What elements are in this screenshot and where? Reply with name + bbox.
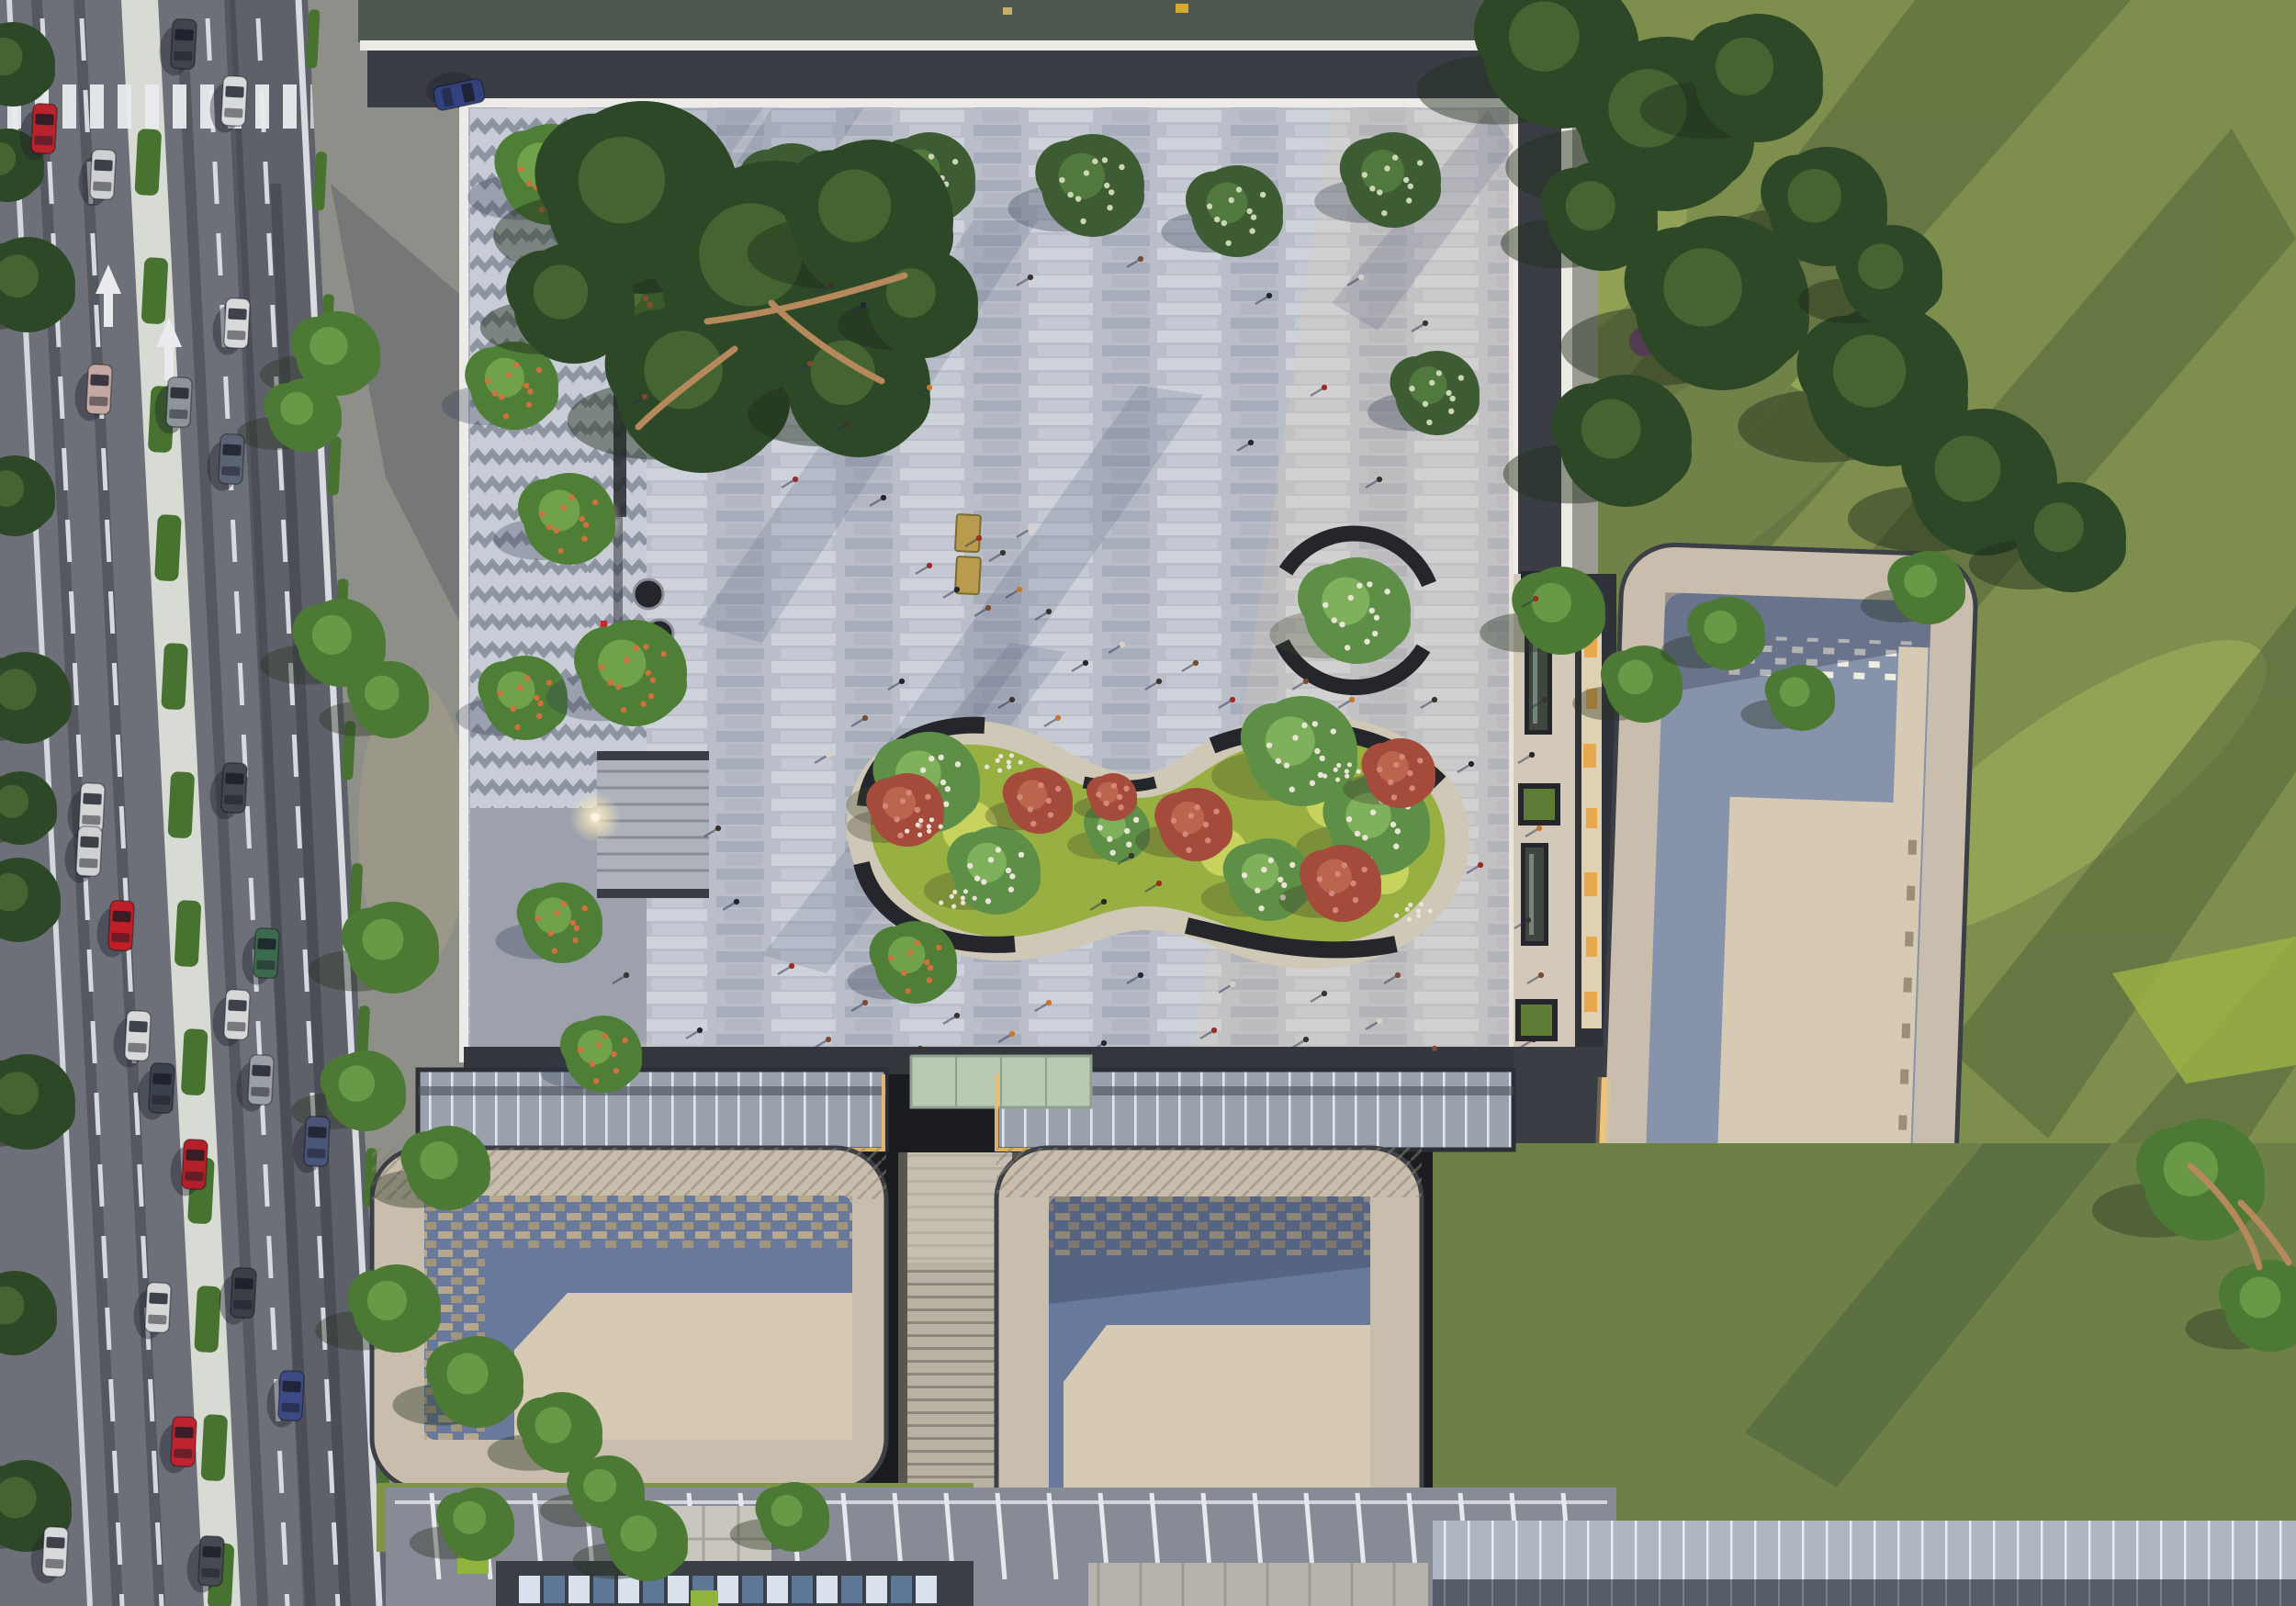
tree-highlight [598, 639, 646, 687]
crosswalk-stripe [90, 84, 104, 129]
tree-blossom [1030, 821, 1036, 826]
car-body [171, 1416, 197, 1466]
tree-blossom [955, 761, 961, 767]
person [826, 752, 831, 758]
person [1322, 385, 1327, 390]
lane-dash [232, 520, 234, 562]
tree-blossom [1205, 837, 1210, 843]
tree-blossom [996, 847, 1001, 852]
tree-blossom [581, 535, 587, 541]
tree-blossom [1370, 810, 1376, 815]
lane-dash [93, 233, 95, 275]
skylight-reflection [1533, 643, 1537, 724]
teal-roof [358, 0, 1561, 42]
tree-blossom [1390, 822, 1396, 827]
tree-highlight [1934, 436, 2000, 502]
car-rear-window [34, 135, 52, 145]
car-windshield [282, 1380, 301, 1392]
tree-blossom [894, 816, 899, 822]
car-body [145, 1282, 172, 1332]
car-windshield [257, 938, 276, 949]
lane-dash [287, 1594, 288, 1606]
lane-dash [104, 1236, 106, 1278]
tree-blossom [643, 644, 648, 649]
tree-blossom [1107, 205, 1112, 210]
tree-blossom [1388, 780, 1393, 785]
square-planter [1515, 999, 1558, 1041]
car-rear-window [79, 858, 97, 868]
tree-blossom [1009, 873, 1015, 879]
median-hedge [167, 771, 195, 838]
person [917, 1046, 923, 1051]
tree-blossom [1277, 877, 1283, 882]
car-windshield [225, 772, 244, 784]
tree-blossom [621, 707, 626, 713]
tree-blossom [1436, 370, 1442, 376]
person [985, 605, 991, 611]
stair-ramp-cap [597, 751, 709, 760]
tree-blossom [1207, 204, 1212, 209]
person [1101, 899, 1107, 904]
car-windshield [225, 85, 244, 97]
person [1129, 853, 1134, 859]
tree-blossom [943, 802, 949, 807]
tree-blossom [1458, 375, 1464, 380]
lane-dash [208, 18, 209, 61]
tree-blossom [1194, 804, 1199, 810]
tree-blossom [1346, 816, 1352, 822]
car-windshield [152, 1073, 172, 1084]
tree-blossom [1372, 631, 1378, 636]
tree-blossom [907, 949, 913, 955]
tree-blossom [1322, 602, 1328, 608]
square-planter [1518, 783, 1560, 825]
median-hedge [174, 900, 202, 967]
striped-roof-panels [519, 1576, 937, 1603]
tree-highlight [1858, 243, 1903, 289]
flower-dot [1416, 914, 1421, 918]
person [862, 1000, 868, 1005]
lane-dash [279, 1451, 281, 1493]
person [927, 385, 932, 390]
skylight-glass [1525, 848, 1544, 941]
flower-dot [1394, 914, 1399, 918]
tree-blossom [590, 1061, 595, 1067]
lane-dash [118, 1522, 119, 1565]
tree-blossom [1102, 157, 1108, 163]
tree-blossom [1266, 742, 1272, 747]
tree-blossom [981, 879, 986, 884]
tree-blossom [561, 901, 567, 906]
tree-blossom [1417, 758, 1423, 763]
lane-dash [64, 448, 66, 490]
tree-blossom [660, 651, 666, 657]
lane-dash [61, 376, 62, 419]
tree-blossom [1335, 871, 1341, 877]
lane-dash [294, 735, 296, 777]
tree-blossom [1213, 808, 1219, 814]
tree-blossom [1046, 798, 1052, 803]
roof-panel [519, 1576, 540, 1603]
lane-dash [143, 1236, 145, 1278]
person [1542, 697, 1548, 702]
tree-blossom [1384, 589, 1390, 594]
median-hedge [194, 1286, 221, 1353]
person [899, 679, 905, 684]
tree-highlight [818, 170, 891, 242]
tree-blossom [1310, 781, 1315, 786]
tree-blossom [592, 500, 598, 505]
car-body [248, 1054, 275, 1105]
tree-blossom [524, 675, 530, 680]
tree-blossom [1417, 160, 1423, 165]
person [1009, 1031, 1015, 1037]
tree-blossom [1236, 186, 1242, 192]
flower-dot [939, 825, 943, 829]
tree-blossom [582, 905, 588, 911]
tree-blossom [485, 378, 490, 384]
roof-equipment [1176, 4, 1188, 13]
lane-dash [161, 1594, 163, 1606]
tree-highlight [447, 1353, 489, 1395]
tree-blossom [622, 1038, 627, 1043]
tree-blossom [927, 977, 932, 983]
person [1230, 697, 1235, 702]
tree-blossom [1028, 806, 1033, 812]
car-rear-window [227, 1021, 245, 1031]
tree-blossom [578, 1047, 583, 1052]
tree-blossom [1119, 164, 1124, 170]
lane-dash [265, 162, 267, 204]
person [1525, 917, 1531, 923]
tree-blossom [1284, 762, 1289, 768]
flower-dot [1334, 768, 1338, 772]
roof-panel [742, 1576, 763, 1603]
stair-side-wall [898, 1152, 907, 1520]
tree-blossom [936, 945, 941, 950]
lane-dash [50, 162, 51, 204]
courtyard-facade-texture [424, 1196, 852, 1249]
tree-blossom [648, 693, 654, 699]
tree-blossom [554, 528, 559, 533]
crosswalk-stripe [283, 84, 297, 129]
tree-highlight [579, 137, 666, 224]
car-body [221, 762, 248, 813]
car-rear-window [169, 409, 187, 419]
car-body [31, 103, 58, 153]
tree-blossom [568, 494, 574, 500]
tree-blossom [1255, 887, 1260, 893]
tree-blossom [1361, 867, 1367, 872]
tree-blossom [1314, 748, 1320, 754]
lane-dash [121, 806, 123, 848]
person [715, 825, 721, 831]
car-rear-window [224, 794, 242, 804]
tree-blossom [1107, 837, 1112, 842]
flower-dot [1356, 769, 1361, 774]
median-hedge [154, 514, 182, 581]
flower-dot [918, 818, 923, 823]
person [1017, 587, 1022, 592]
car-body [171, 18, 197, 69]
flower-dot [997, 768, 1002, 772]
car-rear-window [111, 932, 129, 942]
roof-panel [916, 1576, 937, 1603]
car-rear-window [82, 814, 100, 825]
car-rear-window [148, 1314, 166, 1324]
tree-highlight [1787, 169, 1841, 223]
tree-blossom [1301, 723, 1307, 728]
car-rear-window [251, 1086, 269, 1096]
car-windshield [129, 1020, 148, 1032]
flower-dot [1419, 902, 1424, 906]
tree-blossom [1251, 214, 1256, 219]
tree-blossom [1331, 728, 1336, 734]
tree-blossom [574, 926, 580, 931]
flower-dot [973, 896, 977, 901]
tree-blossom [1124, 828, 1130, 834]
lane-dash [305, 949, 307, 992]
tree-highlight [310, 327, 347, 365]
tree-blossom [615, 684, 621, 690]
flower-dot [998, 754, 1003, 758]
tree-highlight [1509, 1, 1580, 72]
person [1138, 972, 1143, 978]
car-rear-window [185, 1171, 203, 1181]
tree-blossom [1355, 831, 1360, 837]
aerial-architectural-rendering [0, 0, 2296, 1606]
crosswalk-stripe [118, 84, 131, 129]
lane-dash [89, 949, 91, 992]
car-rear-window [201, 1567, 219, 1578]
tree-blossom [924, 960, 929, 965]
tree-highlight [1322, 577, 1369, 624]
person [1138, 256, 1143, 262]
tree-blossom [570, 920, 576, 926]
tree-blossom [1276, 758, 1281, 764]
tree-highlight [1663, 248, 1742, 327]
tree-blossom [526, 402, 532, 408]
tree-blossom [546, 679, 552, 685]
tree-blossom [1289, 862, 1295, 868]
tree-blossom [546, 524, 552, 530]
car-windshield [94, 159, 113, 171]
tree-blossom [929, 756, 934, 761]
tree-blossom [537, 701, 543, 706]
person [1469, 761, 1474, 767]
stair-ramp-cap [597, 889, 709, 898]
tree-blossom [1403, 177, 1409, 183]
tree-blossom [611, 1051, 616, 1057]
lane-dash [333, 1522, 335, 1565]
lane-dash [85, 90, 87, 132]
car-windshield [83, 792, 102, 804]
tree-blossom [1333, 907, 1338, 913]
car-body [304, 1116, 331, 1166]
car-rear-window [174, 51, 192, 61]
flower-dot [1345, 769, 1349, 773]
roof-panel [717, 1576, 738, 1603]
person [828, 282, 834, 287]
tree-blossom [929, 153, 934, 159]
tree-blossom [1281, 882, 1287, 888]
roof-panel [544, 1576, 565, 1603]
lane-dash [320, 1236, 321, 1278]
tree-blossom [1318, 772, 1323, 778]
tree-blossom [1392, 154, 1398, 160]
person [734, 899, 739, 904]
roof-equipment [1003, 7, 1012, 15]
tree-blossom [1399, 754, 1404, 759]
flower-dot [951, 904, 956, 908]
person [1533, 596, 1538, 601]
parapet-line [360, 40, 1572, 51]
kiosk [955, 514, 981, 552]
tree-blossom [608, 679, 613, 685]
tree-blossom [579, 516, 584, 522]
lane-dash [129, 949, 130, 992]
lane-dash [74, 663, 76, 705]
tree-blossom [561, 505, 567, 511]
lane-dash [67, 520, 69, 562]
flower-dot [916, 823, 920, 827]
flower-dot [917, 832, 922, 837]
tree-blossom [1292, 735, 1298, 740]
tree-blossom [1055, 786, 1061, 792]
car-body [221, 75, 248, 126]
person [1531, 1037, 1536, 1042]
flower-dot [1428, 909, 1433, 914]
car-body [224, 298, 251, 348]
car-windshield [80, 836, 99, 848]
tree-blossom [988, 857, 994, 862]
tree-blossom [503, 413, 509, 419]
car-windshield [90, 374, 109, 386]
tree-blossom [1356, 583, 1362, 589]
tree-blossom [1348, 595, 1354, 601]
roof-panel [593, 1576, 614, 1603]
car-rear-window [233, 1299, 252, 1309]
tree-highlight [1532, 583, 1571, 623]
tree-blossom [1067, 192, 1073, 197]
car-windshield [252, 1064, 271, 1076]
person [1536, 825, 1542, 831]
tree-highlight [771, 1495, 803, 1526]
tree-blossom [1369, 608, 1375, 613]
tree-blossom [650, 677, 656, 682]
median-hedge [134, 129, 162, 196]
tree-highlight [365, 676, 400, 711]
flower-dot [1416, 908, 1421, 913]
person [1538, 972, 1544, 978]
tree-highlight [1581, 399, 1641, 459]
southeast-lower-road [1433, 1579, 2296, 1606]
flower-dot [1009, 753, 1014, 758]
person [1303, 1037, 1309, 1042]
tree-blossom [625, 657, 630, 663]
lane-dash [287, 591, 288, 634]
roof-panel [618, 1576, 639, 1603]
tree-blossom [1246, 208, 1252, 214]
person [844, 421, 850, 427]
person [861, 302, 866, 308]
tree-blossom [517, 685, 523, 691]
lamp [591, 814, 600, 822]
tree-blossom [1203, 822, 1209, 827]
lane-dash [104, 448, 106, 490]
tree-blossom [1409, 386, 1414, 391]
tree-blossom [1319, 756, 1324, 761]
tree-blossom [1171, 818, 1176, 824]
tree-blossom [1369, 185, 1375, 191]
lane-dash [93, 1021, 95, 1063]
tree-blossom [535, 915, 540, 921]
tree-blossom [905, 988, 910, 994]
lane-dash [151, 1379, 152, 1421]
median-hedge [141, 257, 169, 324]
car-rear-window [307, 1148, 325, 1158]
tree-highlight [280, 392, 313, 425]
lane-dash [309, 1021, 310, 1063]
lane-dash [251, 878, 253, 920]
tree-highlight [1904, 565, 1937, 598]
car-body [198, 1535, 225, 1586]
person [927, 563, 932, 568]
car-body [224, 989, 251, 1039]
person [1083, 660, 1088, 666]
lane-dash [316, 1164, 318, 1207]
tree-highlight [339, 1065, 376, 1102]
car-rear-window [227, 330, 245, 340]
tree-blossom [1017, 794, 1022, 800]
car-windshield [112, 910, 131, 922]
car-rear-window [89, 396, 107, 406]
tree-blossom [1367, 581, 1372, 587]
roof-panel [866, 1576, 887, 1603]
tree-highlight [534, 264, 588, 319]
flower-dot [1408, 903, 1412, 907]
tree-blossom [1393, 844, 1399, 849]
tree-highlight [453, 1501, 486, 1534]
person [954, 587, 960, 592]
car-windshield [202, 1545, 221, 1557]
person [1395, 972, 1401, 978]
flower-dot [1345, 774, 1349, 779]
person [1529, 752, 1535, 758]
tree-blossom [1111, 783, 1117, 789]
person [1028, 275, 1033, 280]
lane-dash [153, 1451, 155, 1493]
tree-blossom [1377, 767, 1382, 772]
tree-blossom [1345, 645, 1350, 650]
tree-blossom [552, 948, 557, 953]
lane-dash [273, 305, 275, 347]
tree-highlight [1833, 335, 1906, 408]
person [1266, 293, 1272, 298]
lane-dash [301, 878, 303, 920]
linear-skylight [1521, 843, 1548, 946]
tree-blossom [599, 665, 604, 670]
tree-highlight [367, 1281, 407, 1320]
car-windshield [170, 387, 189, 399]
person [1358, 275, 1364, 280]
tree-blossom [534, 695, 539, 701]
flower-dot [963, 889, 968, 893]
person [954, 1013, 960, 1018]
tree-blossom [974, 875, 980, 881]
lane-dash [280, 448, 282, 490]
person [1009, 697, 1015, 702]
